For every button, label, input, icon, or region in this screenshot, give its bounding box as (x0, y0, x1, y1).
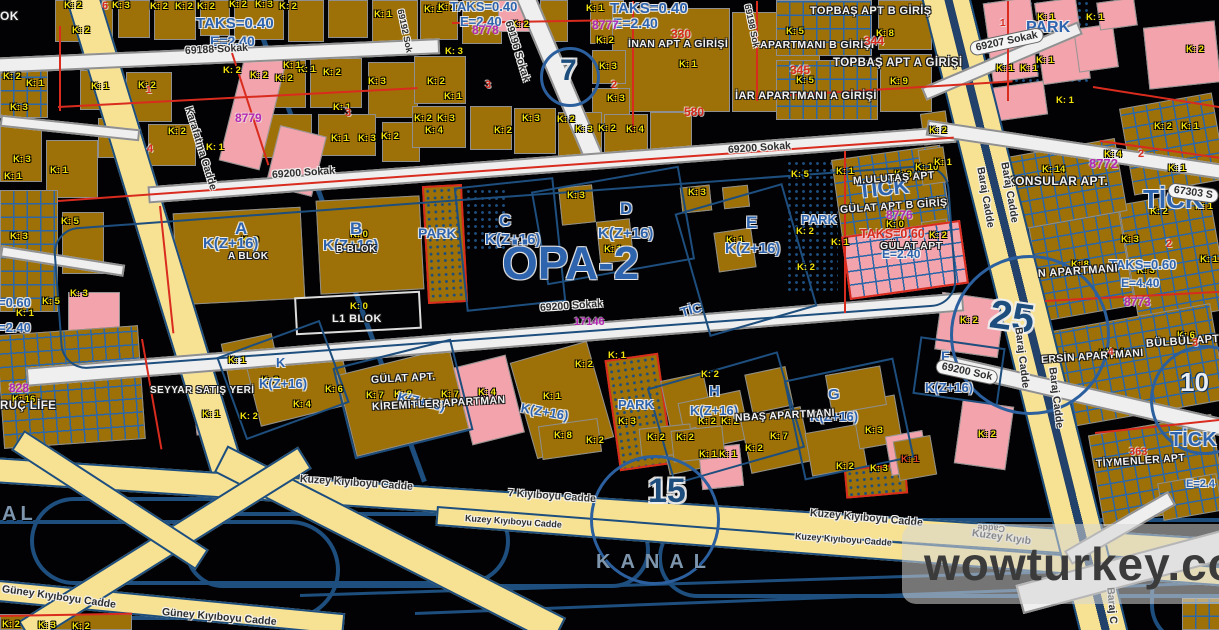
floor-count-label: K: 1 (202, 410, 220, 420)
floor-count-label: K: 2 (279, 2, 297, 12)
floor-count-label: K: 3 (688, 188, 706, 198)
floor-count-label: K: 3 (865, 426, 883, 436)
floor-count-label: K: 1 (374, 10, 392, 20)
parcel-number-red: 330 (671, 28, 691, 40)
zoning-label: PARK (618, 398, 654, 411)
building-name-label: TOPBAŞ APT A GİRİŞİ (833, 58, 962, 70)
zoning-label: =0.60 (0, 296, 31, 309)
floor-count-label: K: 4 (425, 126, 443, 136)
floor-count-label: K: 1 (228, 356, 246, 366)
floor-count-label: K: 3 (870, 464, 888, 474)
floor-count-label: K: 2 (150, 2, 168, 12)
floor-count-label: K: 1 (719, 450, 737, 460)
floor-count-label: K: 2 (240, 412, 258, 422)
floor-count-label: K: 1 (586, 4, 604, 14)
floor-count-label: K: 1 (1036, 56, 1054, 66)
floor-count-label: K: 2 (175, 2, 193, 12)
zoning-label: K(Z+16) (725, 241, 780, 256)
floor-count-label: K: 1 (1181, 122, 1199, 132)
parcel-number-red: TAKS=0.60 (860, 228, 925, 241)
floor-count-label: K: 1 (50, 166, 68, 176)
building-name-label: OK (0, 10, 19, 22)
zoning-label: PARK (418, 226, 457, 240)
floor-count-label: K: 2 (596, 36, 614, 46)
floor-count-label: K: 2 (275, 74, 293, 84)
floor-count-label: K: 3 (445, 47, 463, 57)
zoning-label: TAKS=0.40 (450, 0, 517, 13)
floor-count-label: K: 1 (1200, 255, 1218, 265)
floor-count-label: K: 3 (112, 1, 130, 11)
floor-count-label: K: 5 (786, 27, 804, 37)
floor-count-label: K: 1 (679, 60, 697, 70)
building-name-label: A BLOK (228, 252, 268, 262)
building-pink (1143, 20, 1219, 89)
floor-count-label: K: 1 (331, 134, 349, 144)
building-name-label: TOPBAŞ APT B GİRİŞ (810, 6, 932, 17)
parcel-number-red: 3 (345, 108, 351, 119)
floor-count-label: K: 3 (38, 621, 56, 630)
floor-count-label: K: 2 (598, 124, 616, 134)
floor-count-label: K: 3 (607, 94, 625, 104)
floor-count-label: K: 3 (10, 232, 28, 242)
zoning-label: TAKS=0.40 (610, 1, 688, 16)
floor-count-label: K: 2 (72, 26, 90, 36)
floor-count-label: K: 3 (13, 155, 31, 165)
floor-count-label: K: 1 (901, 455, 919, 465)
building-pink (992, 81, 1048, 122)
map-canvas[interactable]: KANAL AL 69188 Sokak69196 Sokak69192 Sok… (0, 0, 1219, 630)
floor-count-label: K: 1 (91, 82, 109, 92)
floor-count-label: K: 3 (437, 114, 455, 124)
floor-count-label: K: 2 (978, 430, 996, 440)
zone-line-red (59, 26, 61, 111)
zoning-label: K(Z+16) (203, 236, 258, 251)
zoning-label: TAKS=0.40 (196, 16, 274, 31)
zoning-label: G (828, 387, 840, 402)
parcel-number-magenta: 8779 (235, 112, 262, 124)
floor-count-label: K: 2 (323, 68, 341, 78)
pafta-number: 15 (648, 474, 686, 508)
floor-count-label: K: 1 (16, 309, 34, 319)
floor-count-label: K: 2 (701, 370, 719, 380)
building-brown (328, 0, 368, 38)
parcel-number-magenta: 8773 (1124, 296, 1151, 308)
zoning-label: B (350, 220, 362, 237)
floor-count-label: K: 3 (1121, 235, 1139, 245)
parcel-number-magenta: 8777 (592, 19, 619, 31)
floor-count-label: K: 2 (586, 436, 604, 446)
parcel-number-magenta: 8772 (1089, 157, 1118, 170)
floor-count-label: K: 3 (10, 103, 28, 113)
floor-count-label: K: 5 (791, 170, 809, 180)
floor-count-label: K: 2 (381, 132, 399, 142)
kanal-label-left: AL (2, 504, 37, 524)
floor-count-label: K: 1 (831, 238, 849, 248)
floor-count-label: K: 3 (618, 417, 636, 427)
floor-count-label: K: 2 (575, 360, 593, 370)
floor-count-label: K: 2 (836, 462, 854, 472)
floor-count-label: K: 2 (960, 316, 978, 326)
building-name-label: B BLOK (336, 245, 377, 255)
floor-count-label: K: 3 (368, 77, 386, 87)
zoning-label: PARK (801, 213, 837, 226)
building-name-label: RUÇ LİFE (0, 401, 56, 413)
zoning-label: ÖPA-2 (502, 240, 639, 286)
zone-line-red (756, 1, 758, 101)
floor-count-label: K: 2 (1186, 45, 1204, 55)
floor-count-label: K: 1 (1020, 64, 1038, 74)
parcel-number-magenta: 8778 (472, 24, 499, 36)
floor-count-label: K: 2 (250, 71, 268, 81)
parcel-number-red: 3 (1192, 338, 1198, 349)
floor-count-label: K: 2 (1154, 122, 1172, 132)
floor-count-label: K: 2 (698, 417, 716, 427)
zoning-label: E=4.40 (1121, 277, 1159, 289)
floor-count-label: K: 5 (61, 217, 79, 227)
floor-count-label: K: 2 (223, 66, 241, 76)
floor-count-label: K: 2 (745, 444, 763, 454)
zoning-label: TAKS=0.60 (1109, 258, 1176, 271)
floor-count-label: K: 2 (647, 433, 665, 443)
floor-count-label: K: 3 (567, 191, 585, 201)
parcel-number-red: 1 (146, 86, 152, 96)
floor-count-label: K: 1 (4, 172, 22, 182)
floor-count-label: K: 1 (1056, 96, 1074, 106)
floor-count-label: K: 1 (934, 158, 952, 168)
parcel-number-red: 6 (102, 1, 108, 12)
floor-count-label: K: 3 (522, 114, 540, 124)
floor-count-label: K: 1 (608, 351, 626, 361)
parcel-number-red: 363 (1129, 447, 1147, 458)
floor-count-label: K: 2 (168, 127, 186, 137)
zoning-label: =2.40 (0, 321, 31, 334)
floor-count-label: K: 2 (796, 227, 814, 237)
zoning-label: C (499, 212, 511, 229)
building-name-label: İAR APARTMANI A GİRİŞİ (735, 91, 877, 102)
building-name-label: GÜLAT APT (880, 241, 943, 252)
parcel-number-red: 580 (684, 106, 704, 118)
parcel-number-red: 4 (147, 144, 153, 155)
parcel-number-red: 344 (864, 35, 884, 47)
floor-count-label: K: 1 (699, 450, 717, 460)
floor-count-label: K: 4 (626, 125, 644, 135)
floor-count-label: K: 3 (70, 289, 88, 299)
pafta-number: 7 (560, 56, 577, 86)
parcel-number-magenta: 17146 (574, 317, 605, 328)
building-name-label: APARTMANI B GİRİŞİ (760, 40, 874, 51)
building-brown (310, 58, 362, 108)
zoning-label: D (620, 200, 632, 217)
parcel-number-red: 2 (1138, 149, 1144, 160)
floor-count-label: K: 2 (797, 263, 815, 273)
building-name-label: KONSULAR APT. (1006, 175, 1108, 187)
floor-count-label: K: 2 (494, 126, 512, 136)
floor-count-label: K: 1 (996, 64, 1014, 74)
floor-count-label: K: 2 (557, 115, 575, 125)
floor-count-label: K: 7 (366, 391, 384, 401)
zoning-label: E=2.40 (613, 16, 658, 30)
floor-count-label: K: 2 (3, 72, 21, 82)
building-name-label: L1 BLOK (332, 314, 382, 325)
floor-count-label: K: 8 (554, 431, 572, 441)
parcel-number-red: 3 (485, 80, 491, 91)
floor-count-label: K: 5 (42, 297, 60, 307)
floor-count-label: K: 3 (358, 134, 376, 144)
floor-count-label: K: 2 (929, 126, 947, 136)
zone-line-red (1007, 1, 1009, 101)
floor-count-label: K: 2 (72, 622, 90, 630)
floor-count-label: K: 5 (796, 76, 814, 86)
floor-count-label: K: 2 (229, 0, 247, 10)
parcel-number-red: 1 (1000, 19, 1006, 29)
floor-count-label: K: 7 (770, 432, 788, 442)
floor-count-label: K: 3 (599, 62, 617, 72)
zoning-label: E=2.4 (1186, 479, 1215, 490)
building-name-label: SEYYAR SATIŞ YERİ (150, 386, 254, 396)
floor-count-label: K: 1 (543, 392, 561, 402)
floor-count-label: K: 2 (427, 77, 445, 87)
floor-count-label: K: 2 (197, 2, 215, 12)
floor-count-label: K: 0 (350, 302, 368, 312)
zoning-label: K(Z+16) (690, 404, 738, 417)
parcel-number-red: 2 (611, 80, 617, 91)
zoning-label: K(Z+16) (925, 381, 973, 394)
kanal-label: KANAL (596, 552, 716, 572)
floor-count-label: K: 1 (26, 79, 44, 89)
zoning-label: K (276, 356, 285, 369)
floor-count-label: K: 4 (293, 400, 311, 410)
floor-count-label: K: 1 (283, 61, 301, 71)
parcel-number-magenta: 828 (9, 382, 29, 394)
floor-count-label: K: 2 (64, 1, 82, 11)
parcel-number-red: 2 (1166, 239, 1172, 250)
floor-count-label: K: 9 (890, 77, 908, 87)
floor-count-label: K: 2 (676, 433, 694, 443)
parcel-number-red: 4 (1108, 348, 1114, 358)
zoning-label: H (709, 384, 720, 399)
floor-count-label: K: 1 (1086, 13, 1104, 23)
floor-count-label: K: 3 (575, 125, 593, 135)
watermark: wowturkey.com (902, 524, 1219, 604)
parcel-number-magenta: 8776 (886, 209, 913, 221)
floor-count-label: K: 3 (255, 0, 273, 10)
zoning-label: TİCK (1170, 430, 1217, 450)
floor-count-label: K: 2 (414, 114, 432, 124)
floor-count-label: K: 1 (206, 143, 224, 153)
zoning-label: E (746, 214, 757, 231)
zoning-label: K(Z+16) (259, 377, 307, 390)
parcel-number-red: 345 (790, 64, 810, 76)
floor-count-label: K: 6 (325, 385, 343, 395)
floor-count-label: K: 2 (2, 620, 20, 630)
watermark-text: wowturkey.com (924, 537, 1219, 591)
floor-count-label: K: 1 (1168, 164, 1186, 174)
floor-count-label: K: 1 (444, 92, 462, 102)
floor-count-label: K: 1 (836, 167, 854, 177)
pafta-number: 10 (1180, 369, 1209, 395)
